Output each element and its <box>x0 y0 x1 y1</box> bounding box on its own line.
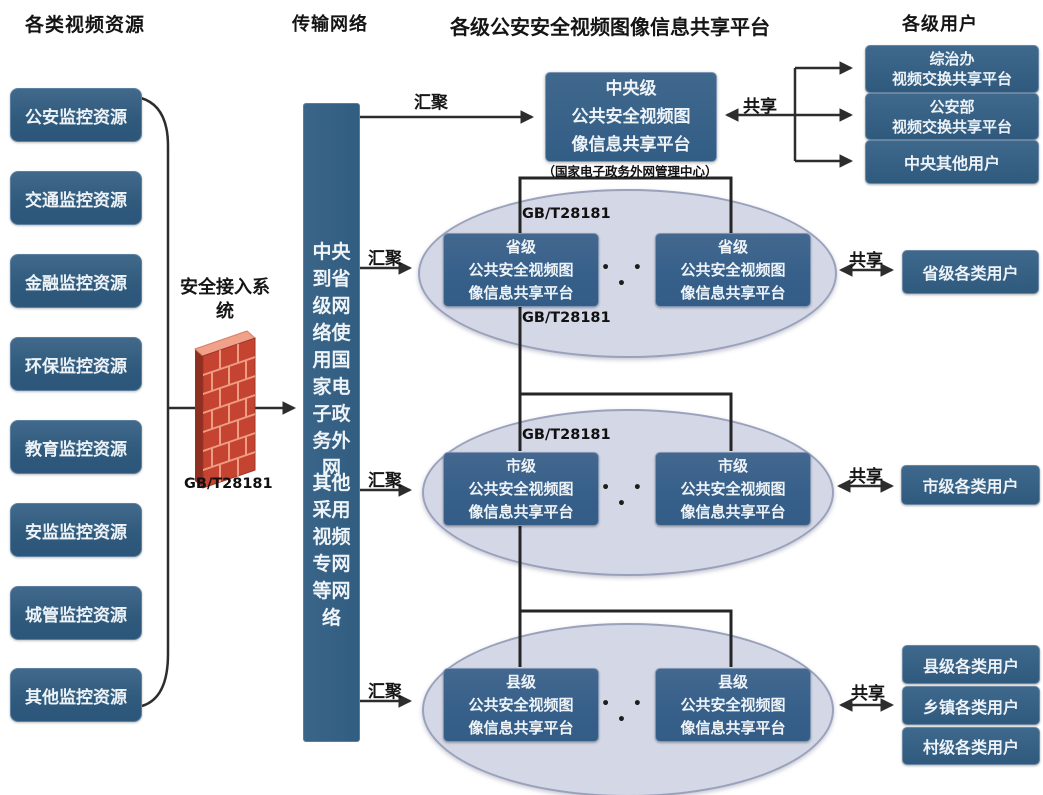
box-line: 乡镇各类用户 <box>923 694 1019 718</box>
box-line: 县级各类用户 <box>923 653 1019 677</box>
transport-upper-text: 中央到省级网络使用国家电子政务外网 <box>304 239 359 482</box>
resource-box-traffic: 交通监控资源 <box>10 171 142 225</box>
user-box-central-other: 中央其他用户 <box>865 140 1039 184</box>
box-line: 公共安全视频图 <box>680 694 785 717</box>
box-line: 像信息共享平台 <box>468 501 573 524</box>
city-ellipsis-dots: • • • <box>598 480 654 512</box>
gb-label-city-above: GB/T28181 <box>522 427 611 443</box>
city-platform-right: 市级 公共安全视频图 像信息共享平台 <box>655 452 811 526</box>
box-line: 综治办 <box>929 49 974 69</box>
transport-network-box: 中央到省级网络使用国家电子政务外网 其他采用视频专网等网络 <box>303 103 360 742</box>
box-line: 县级 <box>506 671 536 694</box>
box-line: 视频交换共享平台 <box>892 117 1012 137</box>
province-platform-right: 省级 公共安全视频图 像信息共享平台 <box>655 233 811 307</box>
resource-box-finance: 金融监控资源 <box>10 254 142 308</box>
firewall-label: 安全接入系统 <box>179 276 271 324</box>
box-line: 视频交换共享平台 <box>892 69 1012 89</box>
box-line: 公共安全视频图 <box>468 259 573 282</box>
box-line: 省级各类用户 <box>922 260 1018 284</box>
box-line: 中央级 <box>606 75 657 103</box>
aggregate-label-central: 汇聚 <box>408 88 454 113</box>
box-line: 公共安全视频图 <box>680 478 785 501</box>
header-platform: 各级公安安全视频图像信息共享平台 <box>445 11 775 40</box>
box-line: 像信息共享平台 <box>680 501 785 524</box>
box-line: 公共安全视频图 <box>572 103 691 131</box>
resource-box-education: 教育监控资源 <box>10 420 142 474</box>
header-video-resources: 各类视频资源 <box>22 10 148 37</box>
gb-label-province-below: GB/T28181 <box>522 310 611 326</box>
box-line: 市级 <box>506 455 536 478</box>
user-box-county: 县级各类用户 <box>902 645 1040 684</box>
user-box-village: 村级各类用户 <box>902 727 1040 765</box>
resource-box-city-mgmt: 城管监控资源 <box>10 586 142 640</box>
central-platform-caption: （国家电子政务外网管理中心） <box>490 161 770 180</box>
aggregate-label-city: 汇聚 <box>362 466 408 491</box>
province-platform-left: 省级 公共安全视频图 像信息共享平台 <box>443 233 599 307</box>
user-box-gonganbu: 公安部 视频交换共享平台 <box>865 93 1039 140</box>
transport-lower-text: 其他采用视频专网等网络 <box>304 470 359 632</box>
county-ellipsis-dots: • • • <box>598 696 654 728</box>
resource-box-environment: 环保监控资源 <box>10 337 142 391</box>
user-box-township: 乡镇各类用户 <box>902 686 1040 725</box>
resource-box-other: 其他监控资源 <box>10 668 142 722</box>
box-line: 公共安全视频图 <box>468 694 573 717</box>
header-users: 各级用户 <box>900 10 980 36</box>
province-ellipsis-dots: • • • <box>598 260 654 292</box>
user-box-zongzhiban: 综治办 视频交换共享平台 <box>865 45 1039 93</box>
box-line: 县级 <box>718 671 748 694</box>
central-platform-box: 中央级 公共安全视频图 像信息共享平台 <box>545 72 717 162</box>
county-platform-left: 县级 公共安全视频图 像信息共享平台 <box>443 668 599 742</box>
county-platform-right: 县级 公共安全视频图 像信息共享平台 <box>655 668 811 742</box>
box-line: 省级 <box>506 236 536 259</box>
resource-box-safety: 安监监控资源 <box>10 503 142 557</box>
header-transport-network: 传输网络 <box>290 10 370 36</box>
box-line: 市级 <box>718 455 748 478</box>
gb-label-province-above: GB/T28181 <box>522 206 611 222</box>
box-line: 村级各类用户 <box>923 734 1019 758</box>
resource-bundle-bracket <box>141 98 168 706</box>
box-line: 省级 <box>718 236 748 259</box>
box-line: 市级各类用户 <box>922 473 1018 497</box>
user-box-province: 省级各类用户 <box>902 250 1039 294</box>
box-line: 公共安全视频图 <box>468 478 573 501</box>
diagram-canvas: 各类视频资源 传输网络 各级公安安全视频图像信息共享平台 各级用户 公安监控资源… <box>0 0 1043 795</box>
box-line: 像信息共享平台 <box>680 717 785 740</box>
share-label-central: 共享 <box>737 92 783 117</box>
box-line: 像信息共享平台 <box>468 282 573 305</box>
share-label-county: 共享 <box>845 679 891 704</box>
user-box-city: 市级各类用户 <box>901 465 1040 505</box>
resource-box-police: 公安监控资源 <box>10 88 142 142</box>
aggregate-label-county: 汇聚 <box>362 677 408 702</box>
box-line: 中央其他用户 <box>904 150 1000 174</box>
box-line: 像信息共享平台 <box>468 717 573 740</box>
firewall-standard-label: GB/T28181 <box>184 476 270 492</box>
box-line: 公安部 <box>929 97 974 117</box>
share-label-city: 共享 <box>843 462 889 487</box>
share-label-province: 共享 <box>843 246 889 271</box>
box-line: 公共安全视频图 <box>680 259 785 282</box>
box-line: 像信息共享平台 <box>680 282 785 305</box>
firewall-icon <box>195 331 255 488</box>
box-line: 像信息共享平台 <box>572 131 691 159</box>
aggregate-label-province: 汇聚 <box>362 244 408 269</box>
city-platform-left: 市级 公共安全视频图 像信息共享平台 <box>443 452 599 526</box>
